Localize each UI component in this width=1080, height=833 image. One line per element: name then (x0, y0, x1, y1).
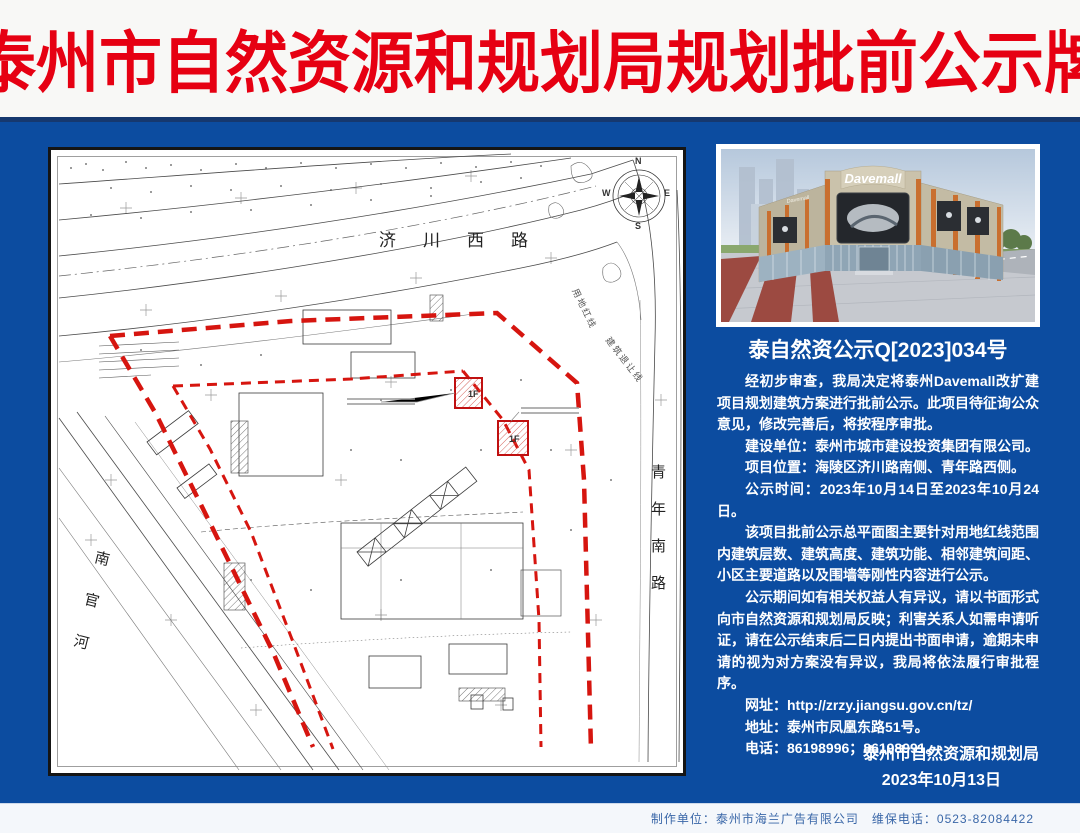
site-plan-drawing: 1F 1F (51, 150, 683, 773)
issuing-authority: 泰州市自然资源和规划局 (717, 742, 1039, 768)
site-plan-panel: 1F 1F (48, 147, 686, 776)
mall-logo-text: Davemall (844, 171, 901, 186)
entrance (859, 247, 889, 271)
floor-tag-2: 1F (509, 434, 520, 444)
footer-credits: 制作单位：泰州市海兰广告有限公司 维保电话：0523-82084422 (651, 810, 1034, 827)
compass-north-label: N (635, 156, 642, 166)
issue-date: 2023年10月13日 (717, 768, 1039, 794)
signature-block: 泰州市自然资源和规划局 2023年10月13日 (717, 742, 1039, 794)
page-title: 泰州市自然资源和规划局规划批前公示牌 (0, 10, 1080, 106)
notice-paragraph: 该项目批前公示总平面图主要针对用地红线范围内建筑层数、建筑高度、建筑功能、相邻建… (717, 522, 1039, 587)
red-boundary-lines (110, 313, 591, 750)
floor-tag-plots: 1F 1F (347, 378, 579, 455)
compass-south-label: S (635, 221, 641, 231)
building-rendering-frame: Davemall Davemall (716, 144, 1040, 327)
notice-paragraph: 公示期间如有相关权益人有异议，请以书面形式向市自然资源和规划局反映；利害关系人如… (717, 587, 1039, 695)
notice-paragraph-url: 网址：http://zrzy.jiangsu.gov.cn/tz/ (717, 695, 1039, 717)
notice-paragraph: 建设单位：泰州市城市建设投资集团有限公司。 (717, 436, 1039, 458)
floor-tag-1: 1F (468, 389, 479, 399)
notice-paragraph: 公示时间：2023年10月14日至2023年10月24日。 (717, 479, 1039, 522)
compass-east-label: E (664, 188, 670, 198)
notice-body: 经初步审查，我局决定将泰州Davemall改扩建项目规划建筑方案进行批前公示。此… (717, 371, 1039, 760)
notice-board: 泰州市自然资源和规划局规划批前公示牌 (0, 0, 1080, 833)
road-right-lines (617, 160, 681, 762)
compass-west-label: W (602, 188, 611, 198)
notice-paragraph: 经初步审查，我局决定将泰州Davemall改扩建项目规划建筑方案进行批前公示。此… (717, 371, 1039, 436)
parking-rows (99, 342, 179, 378)
map-inner-frame (58, 157, 677, 767)
road-centerline (59, 186, 596, 276)
footer: 制作单位：泰州市海兰广告有限公司 维保电话：0523-82084422 (0, 803, 1080, 833)
notice-paragraph: 项目位置：海陵区济川路南侧、青年路西侧。 (717, 457, 1039, 479)
truss-building (357, 467, 477, 566)
compass-icon (613, 170, 665, 222)
notice-paragraph-address: 地址：泰州市凤凰东路51号。 (717, 717, 1039, 739)
document-number: 泰自然资公示Q[2023]034号 (716, 334, 1040, 364)
banner: 泰州市自然资源和规划局规划批前公示牌 (0, 0, 1080, 122)
sidewalk-line (59, 313, 481, 362)
building-outlines (147, 310, 561, 710)
building-rendering: Davemall Davemall (721, 149, 1035, 322)
